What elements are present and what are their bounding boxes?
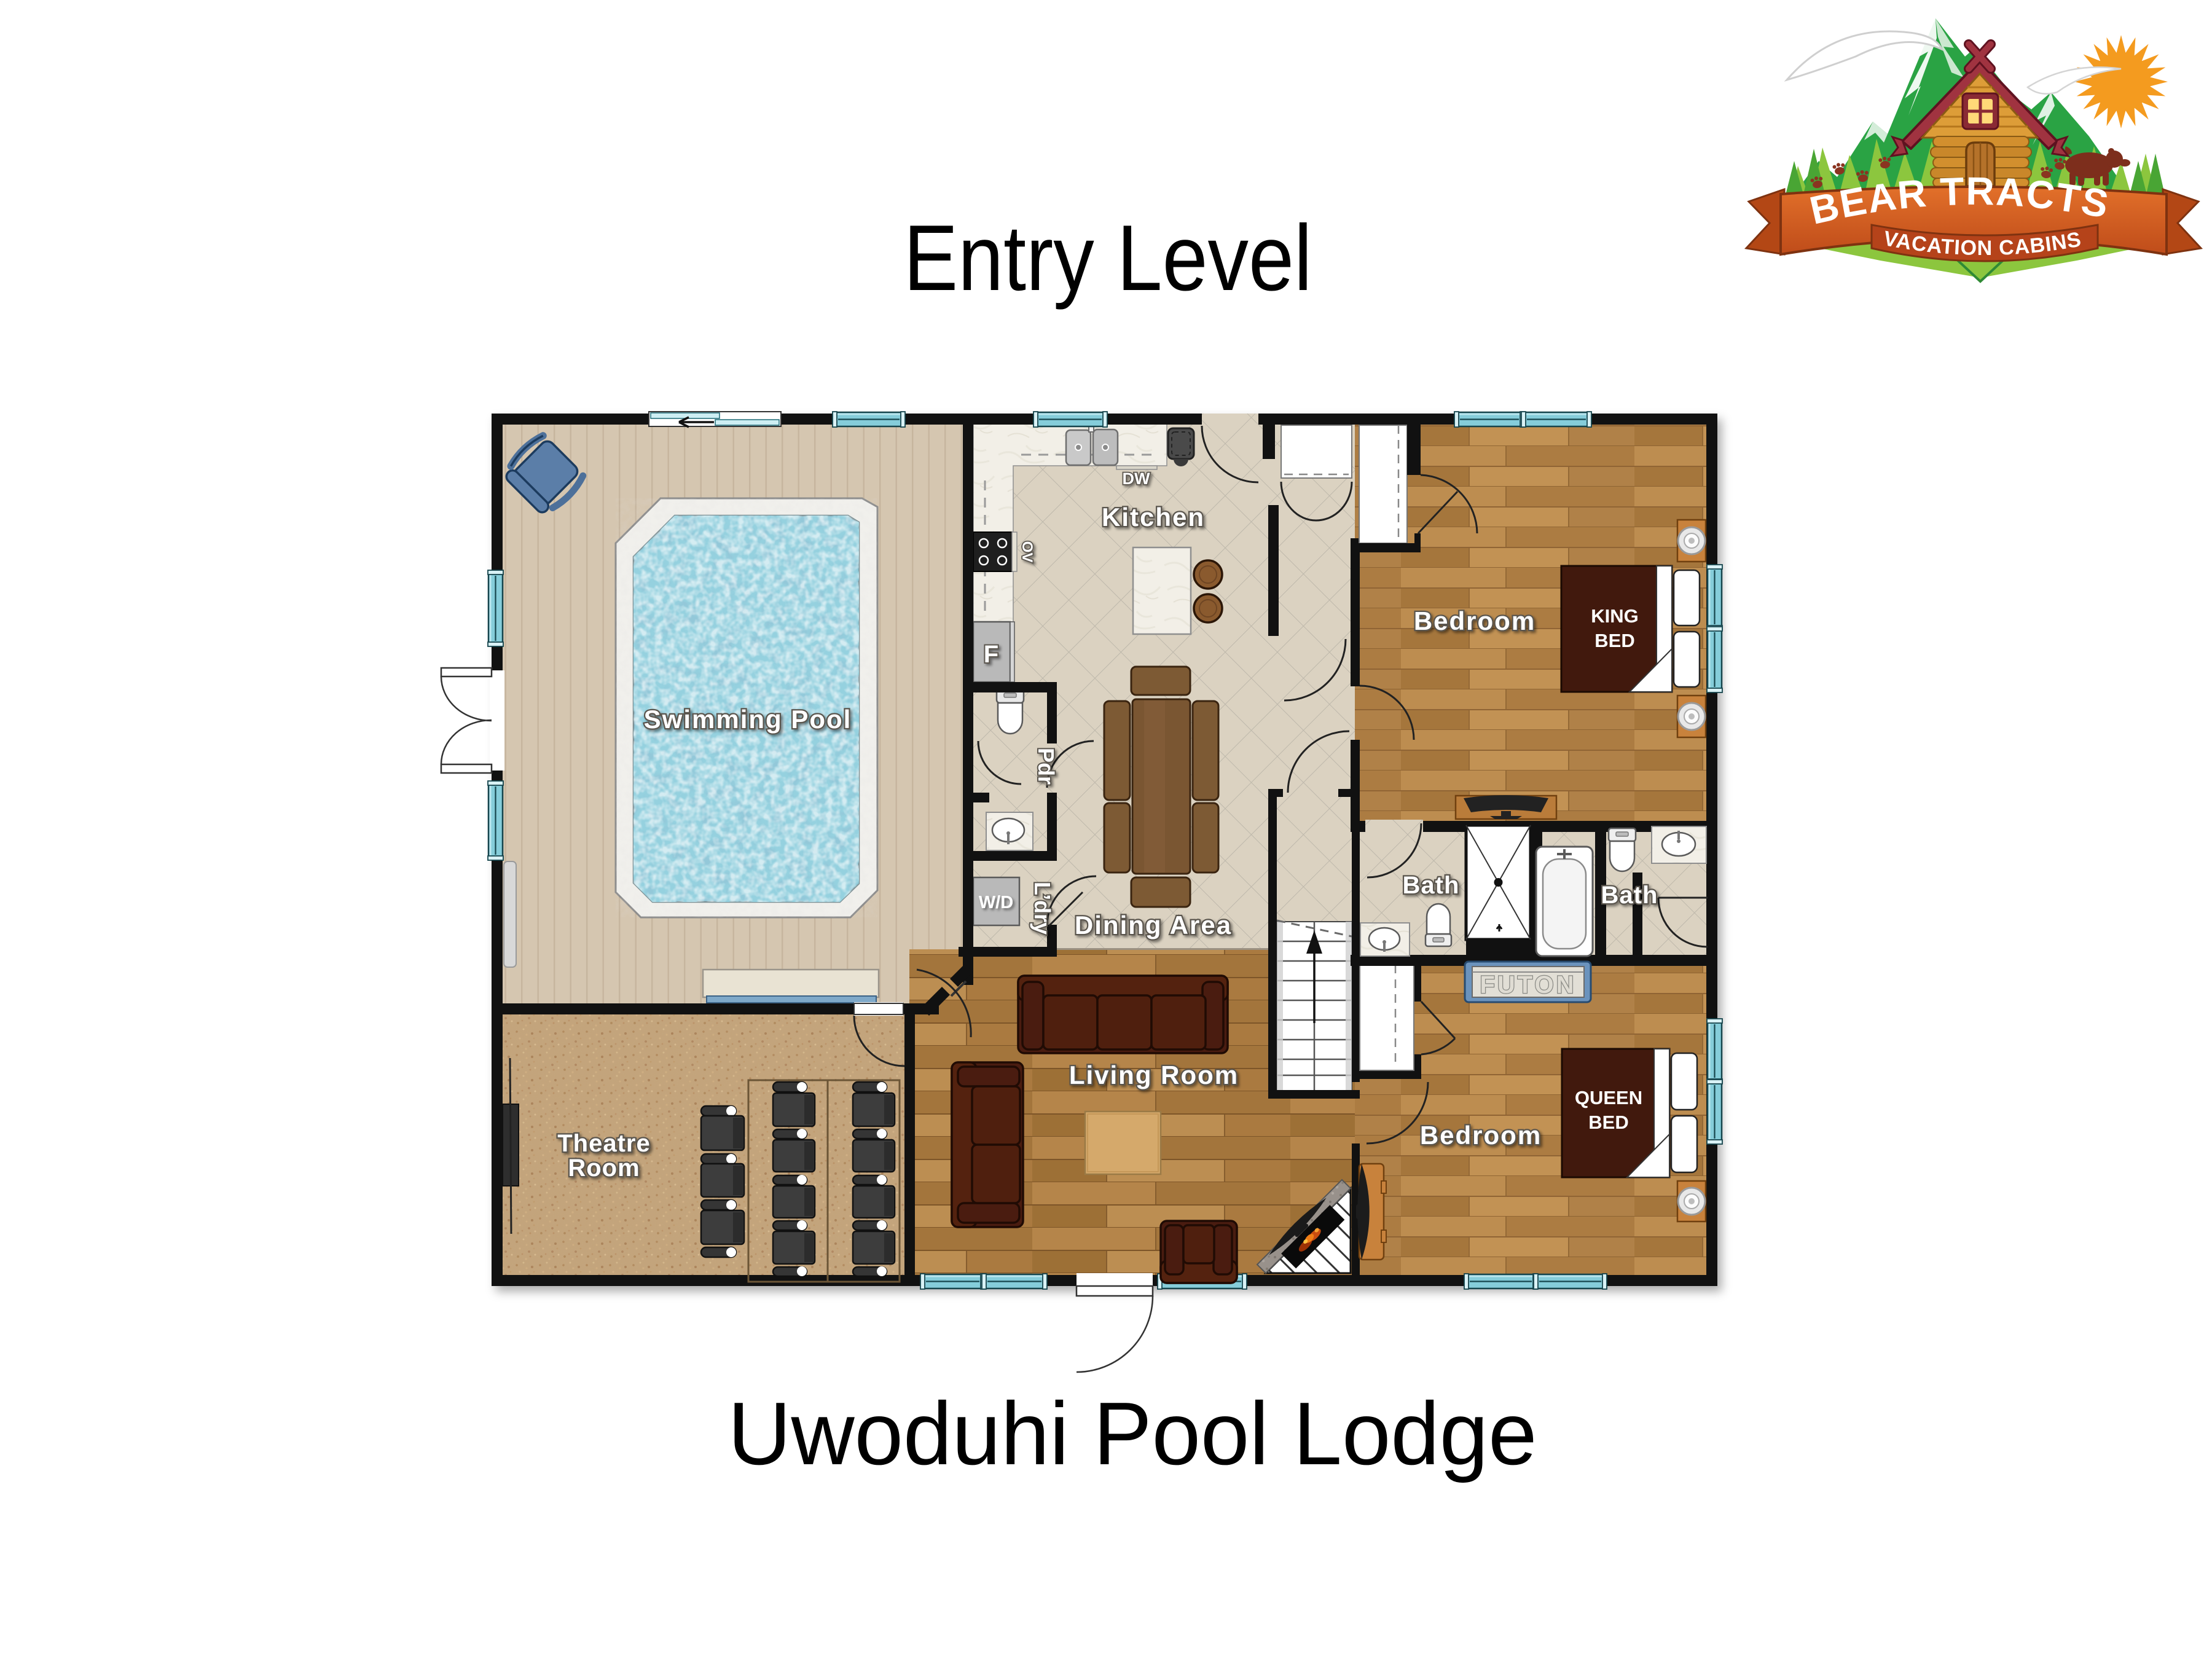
svg-text:Bath: Bath	[1601, 882, 1658, 909]
svg-text:W/D: W/D	[979, 893, 1013, 912]
svg-text:Entry Level: Entry Level	[904, 206, 1312, 310]
svg-text:Dining Area: Dining Area	[1075, 911, 1232, 939]
svg-text:Uwoduhi Pool Lodge: Uwoduhi Pool Lodge	[728, 1384, 1537, 1483]
svg-text:Living Room: Living Room	[1069, 1061, 1239, 1089]
svg-text:Bath: Bath	[1403, 872, 1460, 899]
svg-text:DW: DW	[1123, 469, 1150, 488]
svg-text:KING: KING	[1591, 605, 1639, 627]
svg-text:BED: BED	[1594, 630, 1634, 651]
svg-text:Theatre: Theatre	[557, 1130, 651, 1157]
svg-text:Bedroom: Bedroom	[1414, 606, 1535, 635]
svg-text:QUEEN: QUEEN	[1575, 1087, 1642, 1108]
svg-text:Swimming Pool: Swimming Pool	[644, 705, 852, 734]
svg-text:OV: OV	[1019, 541, 1035, 563]
svg-text:Room: Room	[568, 1155, 640, 1182]
svg-text:BED: BED	[1588, 1112, 1628, 1133]
svg-text:Kitchen: Kitchen	[1102, 503, 1205, 531]
svg-text:F: F	[984, 641, 998, 668]
svg-text:Pdr: Pdr	[1033, 748, 1059, 785]
svg-text:Bedroom: Bedroom	[1420, 1121, 1542, 1150]
svg-text:FUTON: FUTON	[1480, 971, 1576, 998]
svg-text:L’dry: L’dry	[1030, 882, 1055, 935]
